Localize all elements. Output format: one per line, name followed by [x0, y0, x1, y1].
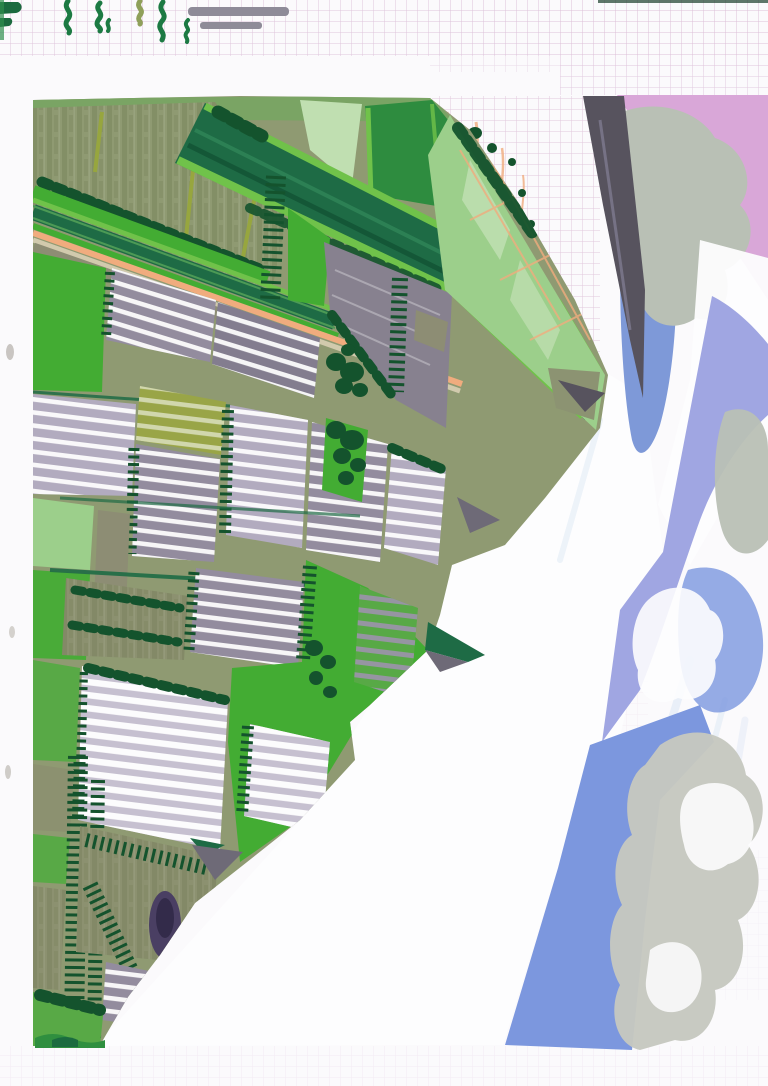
gray-bar-1	[188, 7, 289, 16]
scanned-painting-page: Scan of a hand-painted aerial landscape …	[0, 0, 768, 1086]
greenhouse-l1	[78, 666, 228, 850]
mid-strip-1	[33, 660, 80, 762]
olive-strip-2	[33, 764, 74, 832]
margin-smudge-2	[5, 765, 11, 779]
gray-bar-2	[200, 22, 262, 29]
margin-smudge-1	[6, 344, 14, 360]
top-edge-mark	[598, 0, 768, 3]
painting-canvas	[0, 0, 768, 1086]
edge-green-line	[0, 0, 4, 40]
greenhouse-n	[189, 568, 304, 668]
lime-divider-1	[368, 108, 371, 196]
bright-field-block	[33, 252, 106, 392]
squiggle-olive	[139, 1, 142, 24]
mid-strip-2	[33, 834, 70, 884]
cloud-mid	[715, 409, 768, 553]
margin-smudge-3	[9, 626, 15, 638]
greenhouse-d	[33, 394, 136, 496]
painting-figure: Scan of a hand-painted aerial landscape …	[0, 0, 768, 1086]
bright-patch-trees	[322, 418, 368, 502]
squiggle-3	[108, 20, 109, 31]
light-field-left	[33, 498, 94, 570]
greenhouse-g	[225, 405, 308, 548]
purple-tree-core	[156, 898, 174, 938]
greenhouse-j	[384, 446, 446, 565]
squiggle-5	[186, 20, 188, 42]
squiggle-2	[97, 3, 101, 31]
